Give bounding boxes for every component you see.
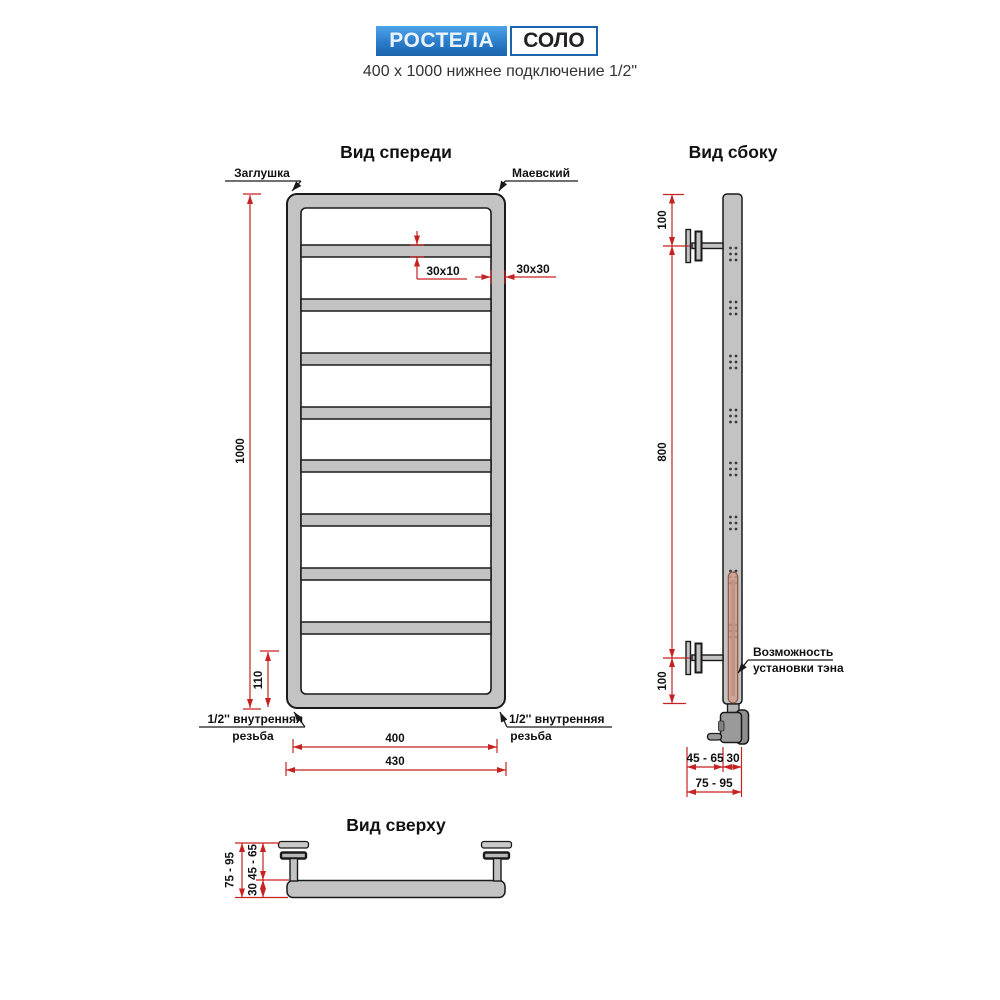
weld-dot <box>735 361 738 364</box>
weld-dot <box>729 421 732 424</box>
svg-text:резьба: резьба <box>232 729 274 743</box>
top-view: Вид сверху 75 - 95 45 - 65 <box>225 815 512 898</box>
svg-text:Возможность: Возможность <box>753 645 833 659</box>
heating-element <box>728 572 737 703</box>
wall-bracket-top <box>686 230 723 263</box>
weld-dot <box>729 259 732 262</box>
top-tube <box>287 881 505 898</box>
weld-dot <box>729 516 732 519</box>
svg-text:430: 430 <box>385 756 404 768</box>
weld-dot <box>729 355 732 358</box>
weld-dot <box>729 415 732 418</box>
weld-dot <box>729 253 732 256</box>
weld-dot <box>729 301 732 304</box>
dim-top-depth: 75 - 95 45 - 65 30 <box>225 843 290 898</box>
plug-leader-line <box>292 181 301 191</box>
svg-text:1000: 1000 <box>235 438 247 464</box>
frame-inner-opening <box>301 208 491 694</box>
weld-dot <box>729 528 732 531</box>
weld-dot <box>735 462 738 465</box>
weld-dot <box>735 409 738 412</box>
front-rung <box>301 568 491 580</box>
svg-text:30x10: 30x10 <box>426 264 460 278</box>
weld-dot <box>729 522 732 525</box>
svg-text:100: 100 <box>657 210 669 229</box>
svg-text:45 - 65: 45 - 65 <box>686 751 724 765</box>
svg-text:30: 30 <box>726 751 740 765</box>
front-rung <box>301 622 491 634</box>
wall-bracket-bottom <box>686 642 723 675</box>
weld-dot <box>735 415 738 418</box>
dim-height-1000: 1000 <box>235 194 261 709</box>
valve-leader-line <box>499 181 505 191</box>
weld-dot <box>729 468 732 471</box>
svg-text:1/2'' внутренняя: 1/2'' внутренняя <box>207 712 303 726</box>
weld-dot <box>735 522 738 525</box>
svg-text:45 - 65: 45 - 65 <box>248 843 260 879</box>
housing-pipe <box>708 734 722 741</box>
svg-text:30: 30 <box>248 883 260 896</box>
svg-text:800: 800 <box>657 442 669 461</box>
thread-label-left: 1/2'' внутренняя резьба <box>199 712 305 743</box>
drawing-page: РОСТЕЛА СОЛО 400 x 1000 нижнее подключен… <box>0 0 1000 1000</box>
weld-dot <box>729 313 732 316</box>
svg-text:400: 400 <box>385 733 404 745</box>
dim-side-vertical-chain: 100 800 100 <box>657 195 690 704</box>
weld-dot <box>729 361 732 364</box>
weld-dot <box>729 367 732 370</box>
front-rung <box>301 245 491 257</box>
svg-text:резьба: резьба <box>510 729 552 743</box>
svg-text:100: 100 <box>657 671 669 690</box>
front-rung <box>301 353 491 365</box>
side-view-title: Вид сбоку <box>689 142 778 162</box>
weld-dot <box>735 355 738 358</box>
plug-label: Заглушка <box>234 166 290 180</box>
weld-dot <box>735 313 738 316</box>
dim-width-430: 430 <box>286 756 506 776</box>
weld-dot <box>729 247 732 250</box>
weld-dot <box>735 528 738 531</box>
top-view-title: Вид сверху <box>346 815 446 835</box>
heater-housing <box>708 704 749 744</box>
weld-dot <box>735 301 738 304</box>
side-view: Вид сбоку <box>657 142 844 797</box>
weld-dot <box>735 516 738 519</box>
weld-dot <box>735 259 738 262</box>
front-rung <box>301 460 491 472</box>
dim-side-depth: 45 - 65 30 75 - 95 <box>686 747 741 797</box>
front-rung <box>301 299 491 311</box>
weld-dot <box>729 307 732 310</box>
heater-option-label: Возможность установки тэна <box>738 645 844 675</box>
dim-bottom-gap-110: 110 <box>253 651 279 707</box>
weld-dot <box>735 421 738 424</box>
front-rung <box>301 514 491 526</box>
technical-drawing: Вид спереди Заглушка Маевский 1000 <box>0 0 1000 1000</box>
weld-dot <box>735 474 738 477</box>
valve-label: Маевский <box>512 166 570 180</box>
top-bracket-right <box>482 842 512 882</box>
front-view-title: Вид спереди <box>340 142 452 162</box>
svg-text:1/2'' внутренняя: 1/2'' внутренняя <box>509 712 605 726</box>
top-bracket-left <box>279 842 309 882</box>
svg-text:установки тэна: установки тэна <box>753 661 844 675</box>
thread-label-right: 1/2'' внутренняя резьба <box>500 712 612 743</box>
weld-dot <box>729 409 732 412</box>
svg-text:30x30: 30x30 <box>516 262 550 276</box>
weld-dot <box>735 253 738 256</box>
housing-notch <box>719 721 725 731</box>
front-view: Вид спереди Заглушка Маевский 1000 <box>199 142 612 776</box>
weld-dot <box>735 247 738 250</box>
weld-dot <box>735 468 738 471</box>
dim-width-400: 400 <box>293 733 497 753</box>
weld-dot <box>729 462 732 465</box>
svg-text:75 - 95: 75 - 95 <box>695 776 733 790</box>
weld-dot <box>729 474 732 477</box>
weld-dot <box>735 307 738 310</box>
svg-text:110: 110 <box>253 671 265 690</box>
svg-text:75 - 95: 75 - 95 <box>225 851 237 887</box>
front-rung <box>301 407 491 419</box>
weld-dot <box>735 367 738 370</box>
